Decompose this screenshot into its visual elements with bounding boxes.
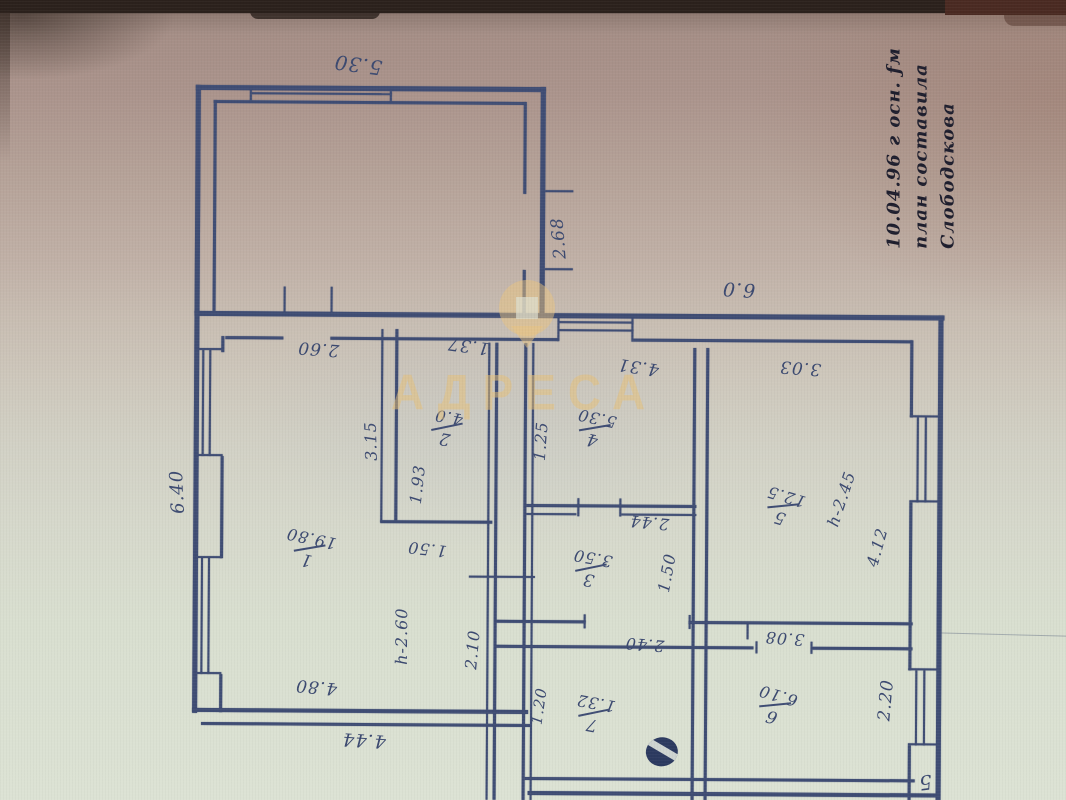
wall-line — [704, 348, 710, 800]
wall-line — [523, 102, 527, 194]
wall-line — [689, 615, 691, 629]
wall-line — [201, 722, 531, 727]
room-number: 4 — [585, 429, 599, 449]
dimension-label: 6.40 — [166, 469, 189, 514]
dimension-label: 2.44 — [629, 511, 670, 534]
wall-line — [525, 777, 915, 782]
wall-line — [908, 743, 939, 745]
wall-line — [209, 350, 212, 456]
room-label-6: 66.10 — [751, 681, 800, 729]
wall-line — [691, 348, 697, 800]
room-number: 1 — [300, 549, 314, 569]
dimension-label: 4.44 — [341, 728, 386, 752]
map-pin-watermark-icon — [499, 280, 555, 336]
wall-line — [908, 668, 939, 670]
wall-line — [220, 456, 224, 558]
wall-line — [915, 670, 917, 745]
dimension-label: 6.0 — [721, 277, 755, 301]
wall-lines-group — [2, 0, 1066, 3]
wall-line — [192, 311, 199, 713]
room-number: 6 — [765, 705, 780, 725]
wall-line — [924, 417, 927, 502]
wall-line — [812, 647, 912, 651]
dimension-label: 2.10 — [461, 629, 484, 670]
wall-line — [202, 350, 205, 456]
room-label-3: 33.50 — [568, 546, 614, 591]
wall-line — [689, 621, 913, 625]
wall-line — [810, 642, 812, 654]
dimension-label: 1.25 — [530, 421, 552, 462]
room-number: 5 — [773, 506, 788, 526]
wall-line — [207, 558, 210, 674]
wall-line — [528, 791, 940, 798]
dimension-label: 2.20 — [874, 678, 898, 722]
dimension-label: 3.15 — [361, 421, 381, 461]
dimension-labels-group: 5.302.682.601.376.04.313.033.151.931.251… — [2, 0, 1066, 3]
photographed-floor-plan: 5.302.682.601.376.04.313.033.151.931.251… — [0, 0, 1066, 800]
wall-line — [469, 576, 535, 578]
wall-line — [394, 329, 398, 522]
wall-line — [219, 674, 222, 712]
dimension-label: 2.60 — [297, 337, 340, 360]
wall-line — [331, 287, 333, 314]
wall-line — [195, 311, 945, 321]
wall-line — [545, 268, 573, 270]
wall-line — [916, 417, 919, 502]
wall-line — [631, 318, 633, 342]
dimension-label: 4.12 — [863, 525, 892, 568]
room-number-labels-group: 119.8024.045.3033.50512.571.3266.10 — [2, 0, 1066, 3]
wall-line — [526, 504, 696, 508]
handwritten-note-line-1: 10.04.96 г осн. ƒм — [881, 47, 908, 249]
handwritten-note: 10.04.96 г осн. ƒм план составила Слобод… — [881, 47, 962, 249]
dimension-label: 1.37 — [446, 333, 490, 358]
wall-line — [910, 340, 913, 417]
wall-line — [380, 520, 492, 524]
wall-line — [214, 100, 526, 105]
wall-line — [557, 317, 559, 341]
wall-line — [619, 499, 621, 517]
wall-line — [197, 454, 223, 456]
wall-line — [558, 329, 633, 331]
wall-line — [908, 502, 912, 670]
wall-line — [195, 85, 201, 313]
wall-line — [496, 620, 586, 624]
dimension-label: 1.50 — [406, 538, 447, 561]
wall-line — [558, 321, 633, 323]
room-number: 7 — [585, 714, 599, 733]
agency-watermark: АДРЕСА — [391, 363, 657, 421]
wall-line — [196, 556, 222, 558]
wall-line — [225, 336, 283, 339]
wall-line — [540, 87, 546, 315]
wall-line — [284, 286, 286, 313]
dimension-label: 2.40 — [624, 634, 665, 656]
wall-line — [526, 513, 576, 515]
room-number: 2 — [438, 428, 452, 447]
wall-line — [200, 558, 203, 674]
dimension-label: 5.30 — [332, 50, 383, 80]
dimension-label: h-2.60 — [392, 607, 411, 664]
dimension-label: h-2.45 — [823, 469, 859, 529]
handwritten-note-line-2: план составила — [908, 47, 935, 249]
wall-line — [577, 498, 579, 516]
wall-line — [380, 329, 383, 522]
wall-line — [936, 315, 944, 800]
wall-line — [197, 348, 223, 350]
room-label-7: 71.32 — [571, 691, 617, 736]
wall-line — [545, 190, 573, 192]
dimension-label: 1.93 — [406, 464, 429, 505]
wall-line — [923, 670, 925, 745]
dimension-label: 3.03 — [779, 356, 822, 379]
handwritten-note-line-3: Слободскова — [935, 47, 962, 249]
wall-line — [213, 100, 217, 313]
room-label-5: 512.5 — [759, 482, 808, 530]
room-label-1: 119.80 — [280, 524, 338, 573]
wall-line — [909, 500, 940, 502]
dimension-label: 2.68 — [547, 216, 570, 259]
wall-line — [390, 89, 392, 102]
wall-line — [747, 623, 749, 639]
ink-blot — [644, 735, 680, 768]
dimension-label: 1.20 — [528, 686, 551, 726]
wall-line — [755, 641, 757, 653]
stray-pen-mark: 5 — [918, 770, 934, 795]
wall-line — [195, 672, 221, 674]
wall-line — [633, 339, 912, 344]
wall-line — [196, 85, 546, 92]
dimension-label: 4.80 — [294, 675, 338, 699]
wall-line — [192, 708, 528, 714]
room-number: 3 — [582, 569, 596, 588]
wall-line — [250, 88, 252, 101]
dimension-label: 1.50 — [654, 552, 680, 594]
wall-line — [908, 745, 911, 800]
wall-line — [252, 92, 392, 95]
wall-line — [910, 415, 941, 417]
dimension-label: 3.08 — [764, 628, 805, 650]
wall-line — [584, 614, 586, 628]
